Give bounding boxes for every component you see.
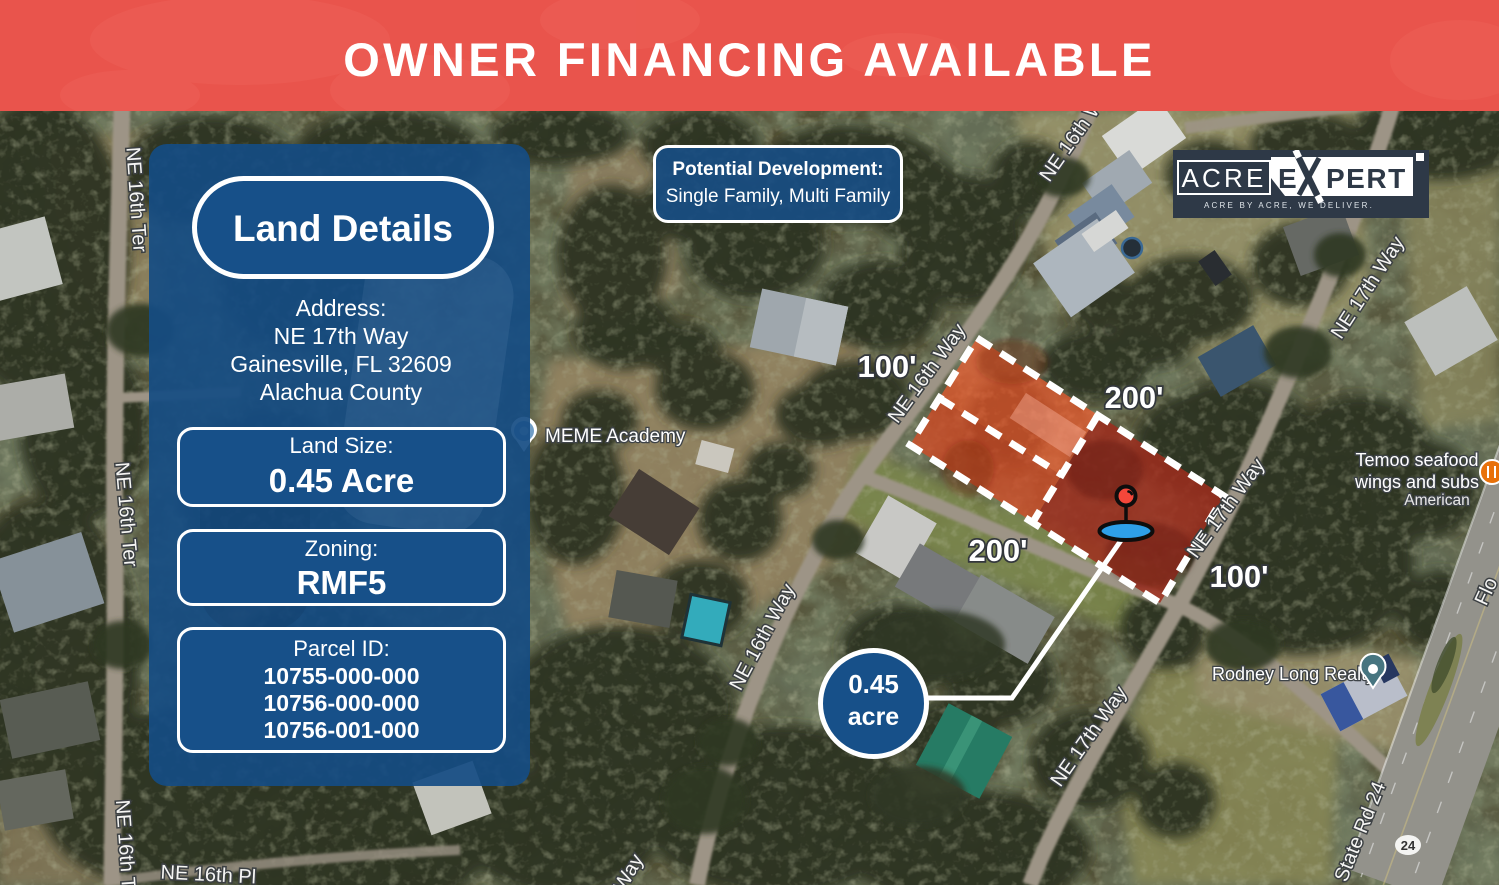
svg-text:200': 200' [1104,380,1163,415]
svg-text:100': 100' [857,349,916,384]
svg-text:NE 16th Pl: NE 16th Pl [160,862,257,885]
svg-text:American: American [1404,492,1469,509]
svg-text:ACRE: ACRE [1181,163,1266,193]
svg-text:MEME Academy: MEME Academy [545,426,686,447]
svg-text:24: 24 [1401,838,1416,853]
svg-text:200': 200' [968,533,1027,568]
svg-text:Temoo seafood: Temoo seafood [1355,450,1478,470]
svg-text:wings and subs: wings and subs [1354,472,1479,492]
svg-text:E: E [1278,163,1297,194]
svg-text:100': 100' [1209,559,1268,594]
svg-text:ACRE BY ACRE, WE DELIVER.: ACRE BY ACRE, WE DELIVER. [1204,201,1374,210]
svg-text:Rodney Long Realty: Rodney Long Realty [1212,664,1375,684]
svg-text:PERT: PERT [1326,163,1407,194]
